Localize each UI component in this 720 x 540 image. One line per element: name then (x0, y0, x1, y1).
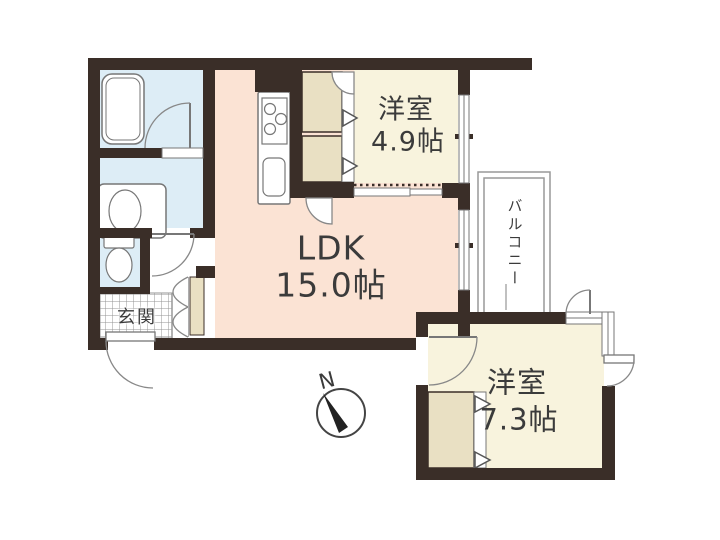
bedroom-bottom-label: 洋室 (487, 369, 547, 398)
wall-b1-right-mid-post (458, 183, 470, 210)
wall-b2-bottom (416, 468, 615, 480)
door-arc-icon (566, 290, 590, 314)
wall-b1-right-top-post (458, 58, 470, 95)
wall-bath-wash (100, 148, 162, 158)
stove-burners-icon (265, 124, 276, 135)
bifold-door-arc (173, 277, 188, 307)
wall-b1-bottom-post (442, 183, 458, 198)
closet-top-b (302, 136, 342, 182)
window-bath-divider (162, 148, 203, 158)
floor-plan: 洋室 4.9帖 LDK 15.0帖 洋室 7.3帖 バルコニー 玄関 N (0, 0, 720, 540)
washbasin-bowl (109, 190, 141, 232)
balcony-label: バルコニー (507, 198, 522, 288)
ldk-size: 15.0帖 (275, 269, 386, 302)
toilet-icon (106, 248, 132, 282)
wall-b2-right (602, 386, 615, 480)
bedroom-top-size: 4.9帖 (371, 129, 445, 156)
compass-needle (323, 393, 348, 433)
ldk-label: LDK (297, 232, 365, 265)
wall-post-hall (196, 266, 215, 278)
kitchen-sink-icon (263, 158, 285, 196)
wall-left (88, 58, 100, 350)
b2-door-gap (416, 337, 428, 385)
kitchen (258, 92, 290, 204)
wall-wash-hall-a (100, 228, 152, 238)
sliding-panel (354, 188, 410, 196)
bathtub-inner (106, 78, 140, 140)
wall-closet-bottom (290, 182, 354, 198)
stove-burners-icon (276, 114, 287, 125)
door-arc-icon (152, 234, 194, 276)
wall-wc-right (140, 238, 150, 293)
wall-closet-left (290, 70, 302, 198)
wall-b2-top (416, 312, 566, 324)
stove-burners-icon (265, 104, 276, 115)
bedroom-bottom-size: 7.3帖 (479, 406, 558, 435)
sliding-panel (410, 189, 442, 195)
shoe-cabinet (190, 277, 204, 335)
entrance-label: 玄関 (117, 309, 157, 327)
bedroom-top-label: 洋室 (378, 97, 434, 124)
compass-icon (317, 389, 365, 437)
b2-right-door-leaf (604, 355, 634, 363)
closet-bottom (428, 392, 474, 468)
bifold-door-arc (173, 307, 188, 337)
wall-wc-genkan (100, 287, 150, 294)
entry-door-leaf (106, 332, 155, 341)
wall-divider-leftcol (203, 70, 215, 238)
